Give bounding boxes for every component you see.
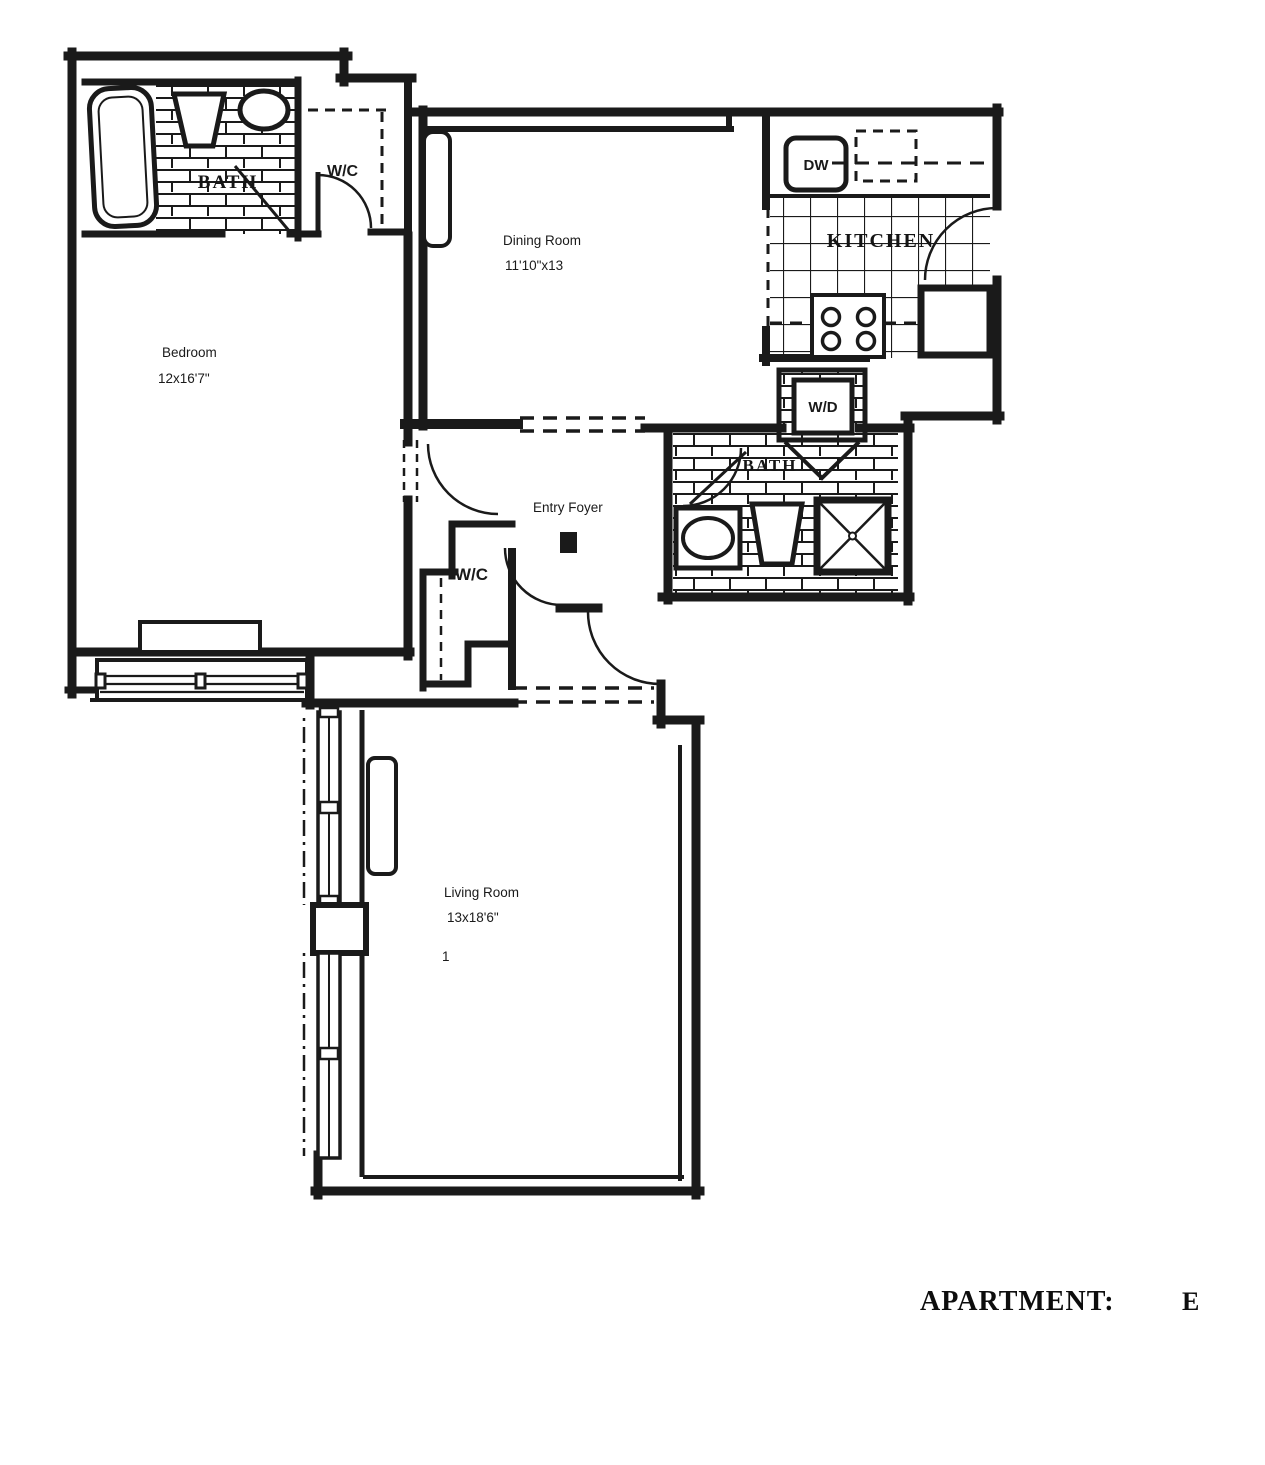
upper-cabinet-dashed	[856, 131, 916, 181]
living-room-mark: 1	[442, 949, 450, 964]
apartment-label: APARTMENT:	[920, 1286, 1115, 1317]
bathtub-icon	[88, 86, 157, 227]
dining-room-label: Dining Room	[503, 233, 581, 248]
sink-icon	[683, 518, 733, 558]
kitchen-label: KITCHEN	[827, 230, 935, 252]
bedroom-radiator	[140, 622, 260, 652]
dining-radiator	[424, 132, 450, 246]
window-pier	[313, 905, 366, 953]
living-room-dims: 13x18'6"	[447, 910, 499, 925]
wc-foyer-label: W/C	[455, 565, 488, 584]
apartment-unit: E	[1182, 1287, 1200, 1316]
bath-lower-label: BATH	[743, 456, 798, 475]
door-swing-arc	[588, 612, 660, 684]
washer-dryer-label: W/D	[808, 399, 837, 416]
living-radiator	[368, 758, 396, 874]
burner-icon	[858, 309, 875, 326]
bath-upper-label: BATH	[198, 172, 258, 193]
door-jamb	[560, 532, 577, 553]
bedroom-dims: 12x16'7"	[158, 371, 210, 386]
bedroom-label: Bedroom	[162, 345, 217, 360]
dishwasher-label: DW	[804, 157, 830, 174]
burner-icon	[823, 333, 840, 350]
dining-foyer-opening	[520, 418, 645, 431]
dining-room-dims: 11'10"x13	[505, 258, 563, 273]
living-room-windows	[304, 708, 366, 1158]
wc-upper-label: W/C	[327, 163, 359, 180]
refrigerator-icon	[921, 288, 990, 355]
shower-icon	[817, 500, 888, 572]
floor-plan: Bedroom 12x16'7" Dining Room 11'10"x13 E…	[0, 0, 1265, 1465]
door-swing-arc	[318, 175, 371, 228]
burner-icon	[858, 333, 875, 350]
foyer-closet-walls	[423, 524, 577, 688]
sink-icon	[240, 91, 288, 129]
bedroom-window	[90, 660, 313, 700]
bedroom-door	[404, 440, 498, 514]
living-room-label: Living Room	[444, 885, 519, 900]
burner-icon	[823, 309, 840, 326]
toilet-icon	[752, 504, 802, 564]
entry-foyer-label: Entry Foyer	[533, 500, 603, 515]
